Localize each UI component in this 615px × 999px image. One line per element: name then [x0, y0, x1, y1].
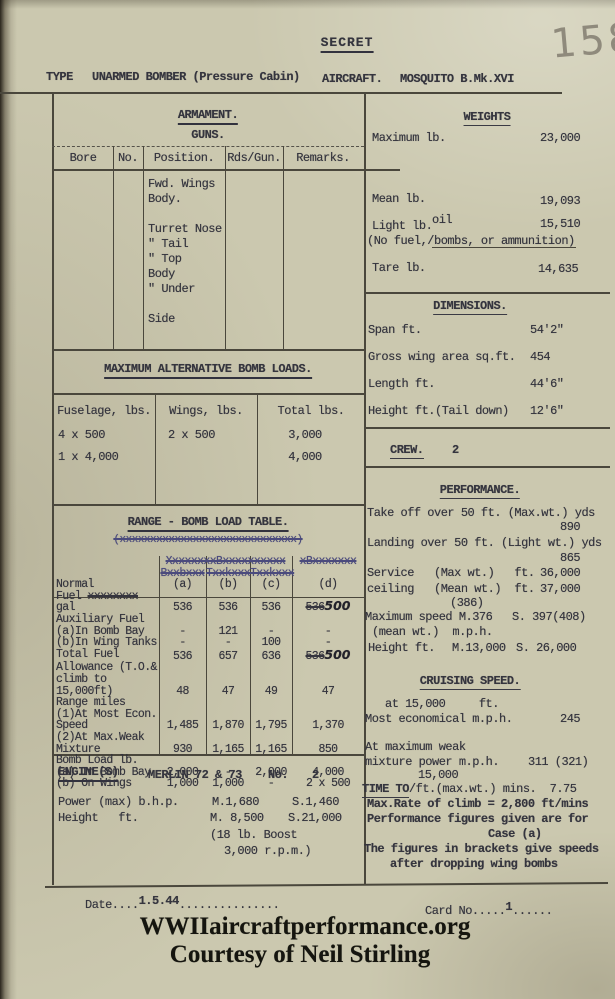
- rangetable-title: RANGE - BOMB LOAD TABLE.: [128, 515, 289, 532]
- dim-length-label: Length ft.: [368, 377, 435, 391]
- range-cell: 47: [292, 686, 364, 698]
- range-bomb-load-table: XxxxxxxxBxxxxxxxxxx xBxxxxxxx Bxxbxxx Tx…: [52, 556, 364, 790]
- engine-no-value: 2: [312, 768, 319, 782]
- perf-height-s: S. 26,000: [516, 641, 576, 655]
- handwritten-page-number: 158: [549, 14, 615, 67]
- weights-tick-rule: [364, 169, 400, 171]
- perf-height-m: M.13,000: [452, 641, 506, 655]
- dim-span-label: Span ft.: [368, 323, 422, 337]
- range-row-label: Range miles (1)At Most Econ. Speed: [52, 697, 159, 732]
- handwritten-correction: 500: [324, 647, 350, 662]
- cruise-note-4: after dropping wing bombs: [390, 857, 558, 871]
- weights-light-insert: oil: [432, 213, 452, 227]
- weights-light-note: (No fuel,/bombs, or ammunition): [367, 234, 575, 248]
- range-cell: 48: [159, 686, 206, 698]
- cruise-weak-value: 311 (321): [528, 755, 588, 769]
- range-row-label: (2)At Max.Weak Mixture: [52, 732, 159, 755]
- perf-takeoff-value: 890: [560, 520, 580, 534]
- perf-speed-insert: (386): [450, 596, 484, 610]
- scanned-data-card: SECRET 158 TYPE UNARMED BOMBER (Pressure…: [0, 0, 615, 999]
- perf-speed-sub: (mean wt.) m.p.h.: [372, 625, 493, 639]
- cruise-time-insert: 15,000: [418, 768, 458, 782]
- cruise-climb-line: Max.Rate of climb = 2,800 ft/mins: [367, 797, 588, 811]
- range-cell-amended: 536500: [292, 649, 364, 663]
- armament-col-line-4: [283, 146, 284, 350]
- range-cell: 536: [250, 602, 292, 614]
- engine-height-s: S.21,000: [288, 811, 342, 825]
- type-label: TYPE: [46, 70, 73, 84]
- time-to-label: TIME TO: [362, 782, 409, 798]
- cruising-title: CRUISING SPEED.: [420, 674, 521, 690]
- crew-label: CREW.: [390, 443, 424, 459]
- dim-length-value: 44'6": [530, 377, 564, 391]
- dim-area-label: Gross wing area sq.ft.: [368, 350, 515, 364]
- page-bottom-rule: [45, 882, 608, 888]
- weights-mean-label: Mean lb.: [372, 192, 426, 206]
- card-no-value: 1: [505, 900, 512, 914]
- armament-col-line-2: [143, 146, 144, 350]
- range-row-label: (b)In Wing Tanks: [52, 637, 159, 649]
- range-cell: 1,870: [206, 720, 250, 732]
- armament-col-position: Position.: [154, 151, 214, 165]
- engine-rpm-note: 3,000 r.p.m.): [224, 844, 311, 858]
- armament-col-line-3: [225, 146, 226, 350]
- cruise-alt-line: at 15,000 ft.: [385, 697, 499, 711]
- cruise-note-2: Case (a): [488, 827, 542, 841]
- range-cell: 536: [159, 602, 206, 614]
- bombloads-bottom-rule: [52, 504, 364, 506]
- perf-service-label: Service (Max wt.) ft.: [367, 566, 535, 580]
- rangetable-title-scribble: (xxxxxxxxxxxxxxxxxxxxxxxxxxxxx): [113, 533, 302, 547]
- range-cell: 1,165: [250, 744, 292, 756]
- range-cell: 1,485: [159, 720, 206, 732]
- range-row-label: Fuel xxxxxxxx gal: [52, 591, 159, 614]
- range-cell: 850: [292, 744, 364, 756]
- armament-header-rule: [52, 169, 364, 171]
- aircraft-value: MOSQUITO B.Mk.XVI: [400, 72, 514, 86]
- dim-height-value: 12'6": [530, 404, 564, 418]
- watermark-line-2: Courtesy of Neil Stirling: [170, 948, 430, 962]
- perf-height-label: Height ft.: [368, 641, 435, 655]
- range-key-d: (d): [292, 579, 364, 591]
- armament-bottom-rule: [52, 349, 364, 351]
- engine-no-label: No.: [268, 768, 288, 782]
- range-cell: -: [206, 637, 250, 649]
- range-cell: 49: [250, 686, 292, 698]
- engine-title: ENGINE(S): [58, 765, 118, 782]
- dimensions-title: DIMENSIONS.: [433, 299, 507, 315]
- handwritten-correction: 500: [324, 598, 350, 613]
- weights-tare-label: Tare lb.: [372, 261, 426, 275]
- weights-light-label: Light lb.: [372, 219, 432, 233]
- range-key-a: (a): [159, 579, 206, 591]
- crew-bottom-rule: [364, 466, 610, 468]
- armament-col-bore: Bore: [70, 151, 97, 165]
- cruise-note-3: The figures in brackets give speeds: [364, 842, 599, 856]
- aircraft-label: AIRCRAFT.: [322, 72, 382, 86]
- range-row-label: Auxiliary Fuel (a)In Bomb Bay: [52, 614, 159, 637]
- armament-title: ARMAMENT.: [178, 108, 238, 125]
- cruise-time-line: TIME TO/ft.(max.wt.) mins. 7.75: [362, 782, 576, 796]
- engine-power-s: S.1,460: [292, 795, 339, 809]
- range-cell: 47: [206, 686, 250, 698]
- bombloads-title: MAXIMUM ALTERNATIVE BOMB LOADS.: [104, 362, 312, 379]
- bombloads-cell: 4 x 500: [58, 428, 105, 442]
- perf-takeoff-label: Take off over 50 ft. (Max.wt.) yds: [367, 506, 595, 520]
- engine-name: MERLIN 72 & 73: [148, 768, 242, 782]
- perf-service-value: 36,000: [540, 566, 580, 580]
- bombloads-header-rule: [52, 393, 364, 395]
- top-rule: [0, 92, 562, 94]
- range-cell: 536: [206, 602, 250, 614]
- cruise-weak-line1: At maximum weak: [365, 740, 466, 754]
- dim-height-label: Height ft.(Tail down): [368, 404, 509, 418]
- weights-max-value: 23,000: [540, 131, 580, 145]
- date-line: Date....1.5.44...............: [85, 898, 279, 912]
- cruise-note-1: Performance figures given are for: [367, 812, 588, 826]
- cruise-econ-label: Most economical m.p.h.: [365, 712, 512, 726]
- range-header-scribble-span: XxxxxxxxBxxxxxxxxxx: [159, 556, 292, 568]
- perf-ceiling-label: ceiling (Mean wt.) ft.: [367, 582, 535, 596]
- range-cell: 1,795: [250, 720, 292, 732]
- bombloads-cell: 1 x 4,000: [58, 450, 118, 464]
- range-cell: 930: [159, 744, 206, 756]
- cruise-econ-value: 245: [560, 712, 580, 726]
- weights-title: WEIGHTS: [464, 110, 511, 126]
- bombloads-col-line-1: [155, 393, 156, 505]
- armament-positions: Fwd. Wings Body. Turret Nose " Tail " To…: [148, 177, 222, 327]
- bombloads-col-line-2: [257, 393, 258, 505]
- dim-span-value: 54'2": [530, 323, 564, 337]
- bombloads-col-total: Total lbs.: [277, 404, 344, 418]
- range-cell: 100: [250, 637, 292, 649]
- bombloads-col-fuselage: Fuselage, lbs.: [57, 404, 151, 418]
- perf-landing-value: 865: [560, 551, 580, 565]
- weights-note-strike: [432, 247, 576, 248]
- engine-height-m: M. 8,500: [210, 811, 264, 825]
- perf-speed-s-value: S. 397(408): [512, 610, 586, 624]
- perf-landing-label: Landing over 50 ft. (Light wt.) yds: [367, 536, 602, 550]
- armament-col-rdsgun: Rds/Gun.: [227, 151, 281, 165]
- armament-col-remarks: Remarks.: [296, 151, 350, 165]
- weights-bottom-rule: [364, 292, 610, 294]
- bombloads-cell: 2 x 500: [168, 428, 215, 442]
- cruise-weak-line2: mixture power m.p.h.: [365, 755, 499, 769]
- armament-col-no: No.: [118, 151, 138, 165]
- range-key-c: (c): [250, 579, 292, 591]
- performance-title: PERFORMANCE.: [440, 483, 520, 499]
- weights-mean-value: 19,093: [540, 194, 580, 208]
- perf-speed-label: Maximum speed M.376: [365, 610, 492, 624]
- range-cell: 2 x 500: [292, 778, 364, 790]
- type-value: UNARMED BOMBER (Pressure Cabin): [92, 70, 300, 84]
- armament-col-line-1: [113, 146, 114, 350]
- armament-dashed-rule: [52, 146, 364, 147]
- range-row-label: Allowance (T.O.& climb to 15,000ft): [52, 662, 159, 697]
- range-key-b: (b): [206, 579, 250, 591]
- weights-light-value: 15,510: [540, 217, 580, 231]
- range-row-label: Total Fuel: [52, 649, 159, 663]
- range-cell: 657: [206, 651, 250, 663]
- range-header-scribble-d: xBxxxxxxx: [292, 556, 364, 568]
- range-cell: 636: [250, 651, 292, 663]
- bombloads-col-wings: Wings, lbs.: [169, 404, 243, 418]
- crew-value: 2: [452, 443, 459, 457]
- weights-tare-value: 14,635: [538, 262, 578, 276]
- range-cell-amended: 536500: [292, 600, 364, 614]
- weights-max-label: Maximum lb.: [372, 131, 446, 145]
- engine-power-m: M.1,680: [212, 795, 259, 809]
- range-cell: -: [159, 637, 206, 649]
- range-cell: 536: [159, 651, 206, 663]
- classification-stamp: SECRET: [321, 36, 374, 53]
- range-header-empty: [52, 556, 159, 568]
- dim-area-value: 454: [530, 350, 550, 364]
- bombloads-cell: 3,000: [288, 428, 322, 442]
- watermark-line-1: WWIIaircraftperformance.org: [140, 920, 471, 934]
- engine-power-label: Power (max) b.h.p.: [58, 795, 179, 809]
- bombloads-cell: 4,000: [288, 450, 322, 464]
- perf-ceiling-value: 37,000: [540, 582, 580, 596]
- range-cell: 1,370: [292, 720, 364, 732]
- dimensions-bottom-rule: [364, 427, 610, 429]
- date-value: 1.5.44: [139, 894, 179, 908]
- range-cell: 1,165: [206, 744, 250, 756]
- engine-height-label: Height ft.: [58, 811, 138, 825]
- engine-boost-note: (18 lb. Boost: [210, 828, 297, 842]
- armament-subtitle: GUNS.: [191, 128, 225, 142]
